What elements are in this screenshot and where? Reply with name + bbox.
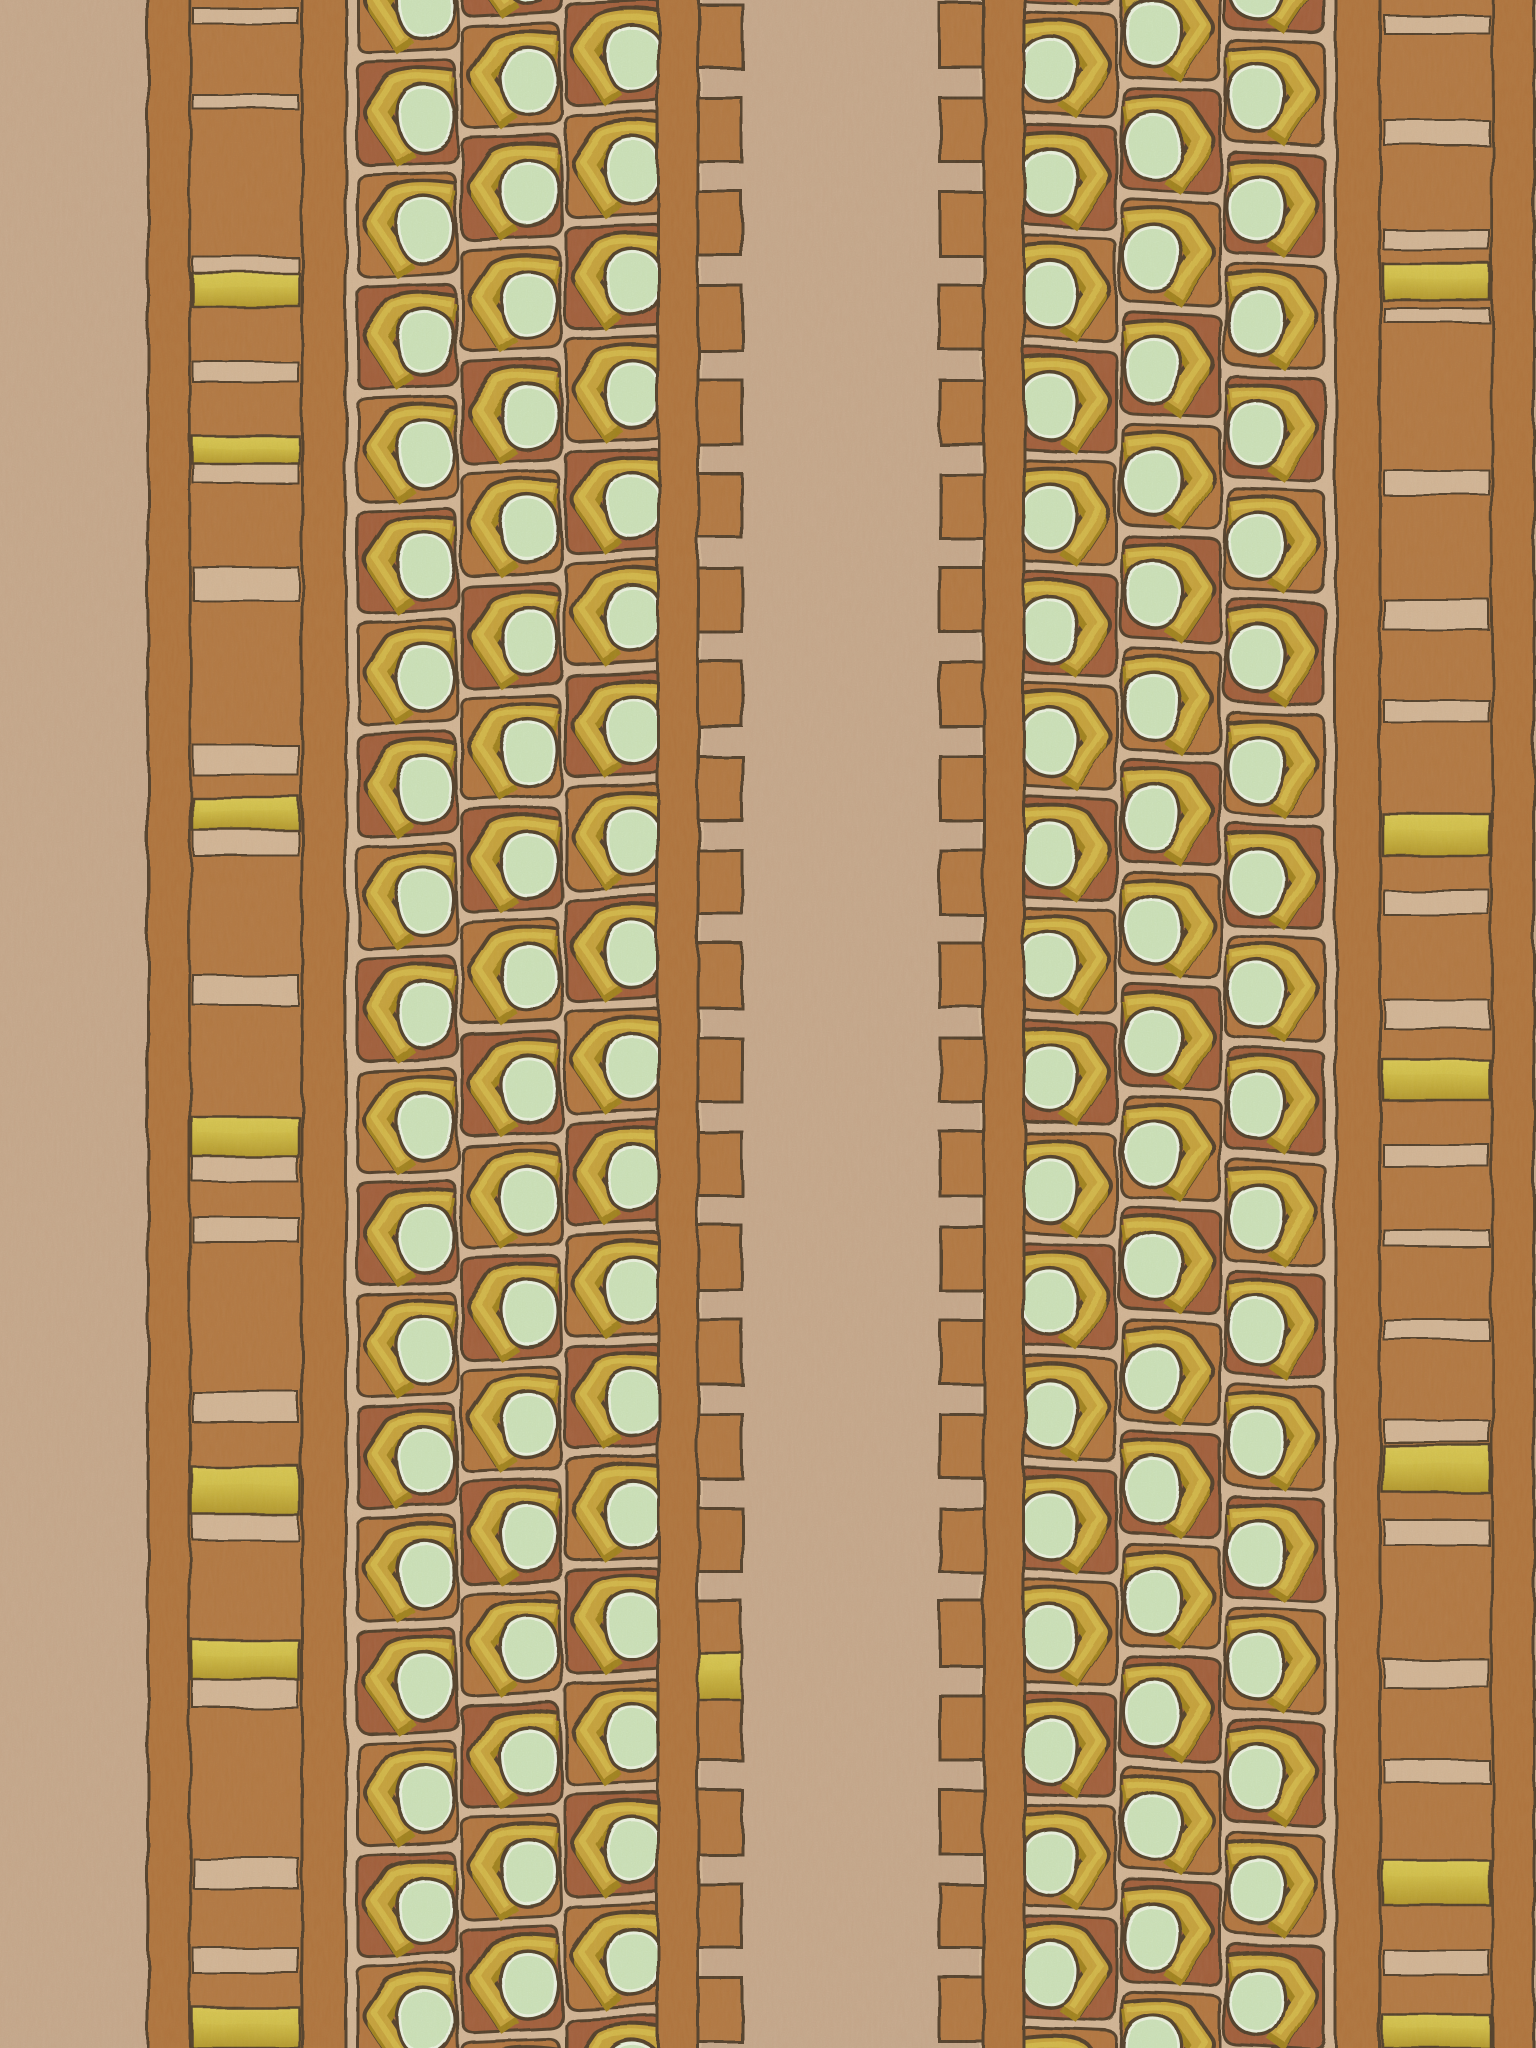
- wallpaper-image: [0, 0, 1536, 2048]
- wallpaper-artwork: [0, 0, 1536, 2048]
- paper-sheen-overlay: [0, 0, 1536, 2048]
